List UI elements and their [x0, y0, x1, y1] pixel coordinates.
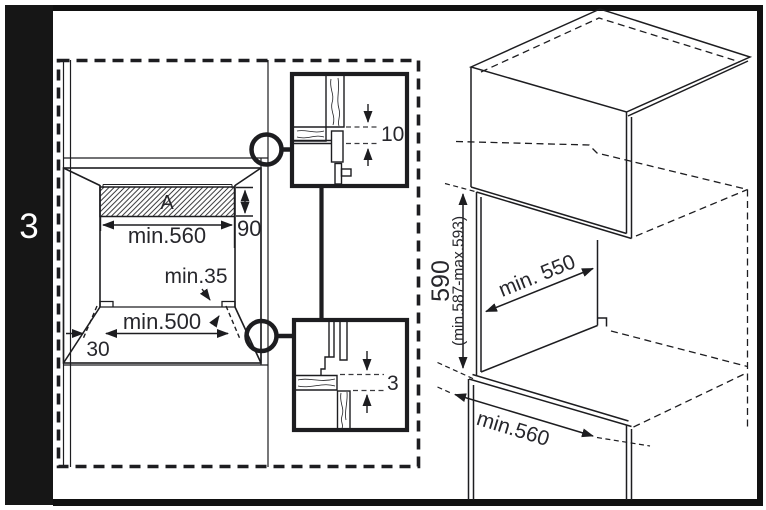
label-3-gap: 3	[387, 372, 399, 395]
dim-90	[236, 188, 253, 217]
installation-diagram: A min.560 90 min.35 min.500 30 10 3 590 …	[0, 0, 766, 510]
label-min560-front: min.560	[128, 223, 206, 248]
label-min550: min. 550	[495, 250, 578, 301]
label-30: 30	[86, 338, 109, 361]
manual-page: 3	[0, 0, 766, 510]
magnifier-circle-top	[252, 135, 282, 165]
label-min35: min.35	[164, 265, 227, 288]
projection-lines	[63, 60, 268, 467]
label-min500: min.500	[123, 309, 201, 334]
label-panel-a: A	[160, 192, 174, 214]
diagram-labels: A min.560 90 min.35 min.500 30 10 3 590 …	[86, 123, 578, 451]
front-view-panel	[59, 60, 419, 467]
label-90: 90	[237, 216, 261, 241]
dashed-panel-border	[59, 61, 419, 467]
label-587-593-range: (min.587-max.593)	[451, 216, 468, 346]
label-min560-iso: min.560	[474, 407, 552, 451]
label-10-gap: 10	[381, 123, 404, 146]
